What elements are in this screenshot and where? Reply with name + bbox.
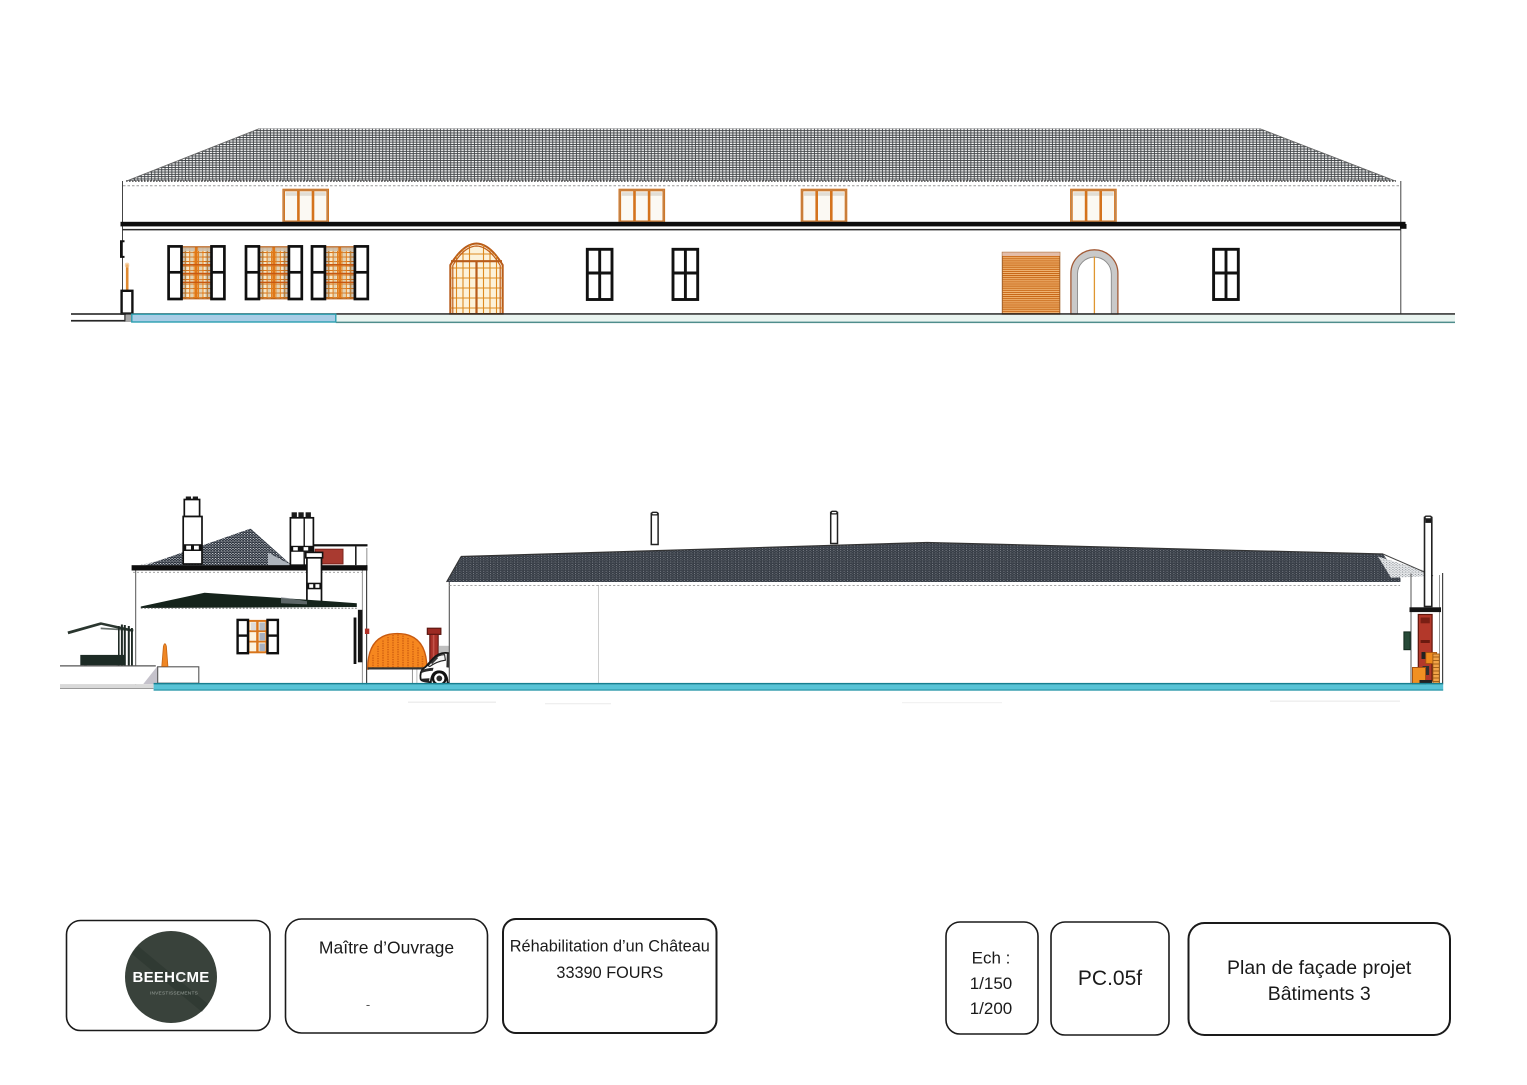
svg-text:Bâtiments 3: Bâtiments 3 — [1268, 983, 1371, 1005]
svg-text:Réhabilitation d’un Château: Réhabilitation d’un Château — [510, 938, 710, 956]
svg-text:INVESTISSEMENTS: INVESTISSEMENTS — [150, 991, 198, 997]
svg-text:33390 FOURS: 33390 FOURS — [556, 964, 663, 982]
svg-text:Ech :: Ech : — [972, 949, 1011, 968]
svg-text:1/200: 1/200 — [970, 999, 1013, 1018]
svg-text:-: - — [366, 997, 370, 1012]
svg-text:Maître d’Ouvrage: Maître d’Ouvrage — [319, 938, 454, 958]
svg-text:PC.05f: PC.05f — [1078, 967, 1142, 990]
svg-text:1/150: 1/150 — [970, 974, 1013, 993]
svg-text:Plan de façade projet: Plan de façade projet — [1227, 957, 1412, 979]
svg-text:BEEHCME: BEEHCME — [132, 969, 209, 986]
